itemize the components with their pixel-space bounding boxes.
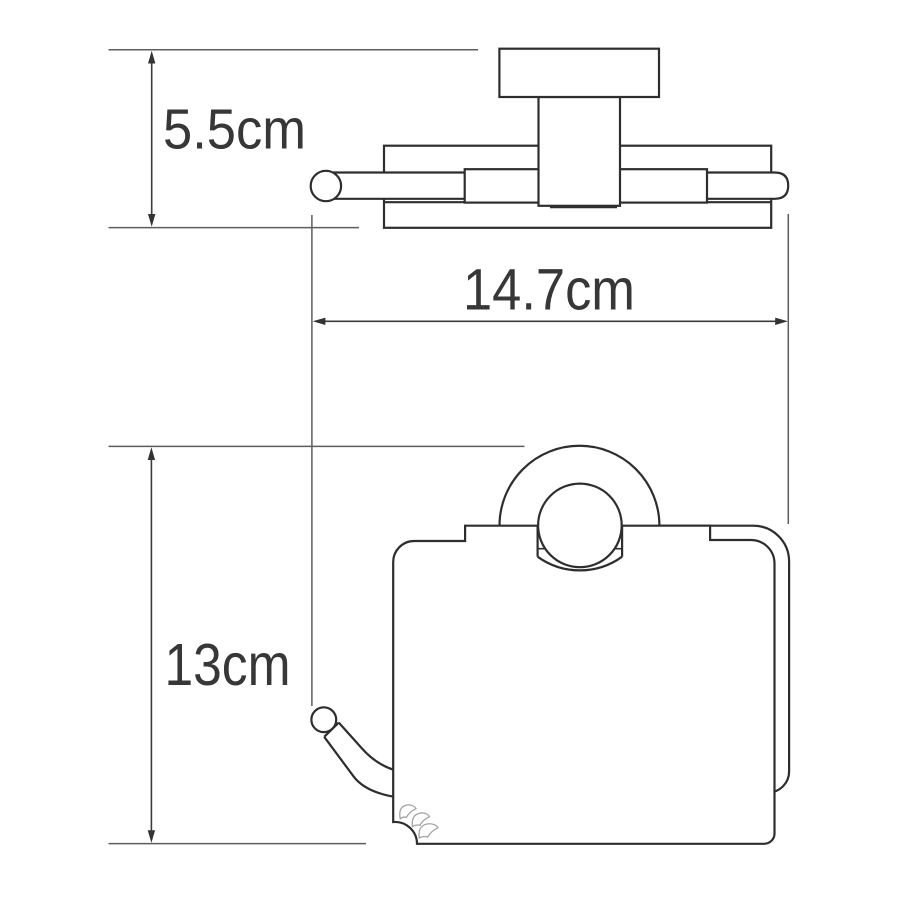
svg-text:14.7cm: 14.7cm — [463, 258, 635, 323]
svg-text:13cm: 13cm — [165, 632, 291, 698]
svg-text:5.5cm: 5.5cm — [163, 98, 306, 162]
